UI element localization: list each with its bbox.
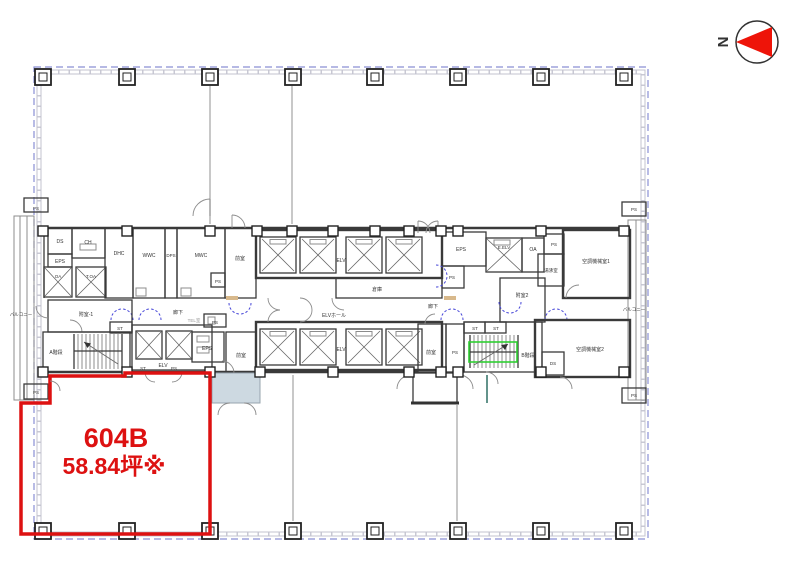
room-label-fushitsu2: 附室2 — [516, 292, 529, 299]
unit-area: 58.84坪※ — [63, 453, 166, 479]
room-label-ch: CH — [84, 240, 92, 246]
room-label-elv-upper: ELV — [336, 258, 346, 264]
room-label-elv-lower: ELV — [336, 347, 346, 353]
room-label-kucho2: 空調機械室2 — [576, 346, 604, 353]
balcony-right-label: バルコニー — [623, 307, 646, 312]
room-label-eps-left: EPS — [55, 259, 66, 265]
balcony-left-label: バルコニー — [10, 312, 33, 317]
room-label-mwc: MWC — [195, 253, 208, 259]
room-label-elv-lower-left: ELV — [158, 363, 168, 369]
room-label-ps-balcony-br: PS — [631, 393, 637, 398]
room-label-zenshitsu-lower-left: 前室 — [236, 352, 246, 359]
room-label-ps-balcony-bl: PS — [33, 390, 39, 395]
floorplan-drawing: PS PS PS PS バルコニー バルコニー DS CH EPS OA T.O… — [0, 0, 802, 562]
compass: N — [715, 21, 778, 63]
room-label-ps-b: PS — [452, 350, 458, 355]
room-label-t-oa: T.OA — [86, 274, 96, 279]
room-label-st-b1: ST — [472, 326, 478, 331]
room-label-a-stair: A階段 — [49, 349, 62, 356]
room-label-zenshitsu-upper: 前室 — [235, 255, 245, 262]
room-label-ps-bottom: PS — [171, 366, 177, 371]
room-label-oa-right: OA — [529, 247, 537, 253]
room-label-dhc: DHC — [114, 251, 125, 257]
room-label-ps-right1: PS — [449, 275, 455, 280]
room-label-yuwakashi: 湯沸室 — [544, 267, 558, 274]
room-label-elv-hall: ELVホール — [322, 313, 346, 319]
room-label-dps: DPS — [166, 253, 175, 258]
compass-north-label: N — [715, 37, 732, 48]
room-label-ps-right2: PS — [551, 242, 557, 247]
room-label-kucho1: 空調機械室1 — [582, 258, 610, 265]
room-label-oa-left: OA — [55, 274, 62, 279]
room-label-ps-balcony-tr: PS — [631, 207, 637, 212]
room-label-st-a-top: ST — [117, 326, 123, 331]
room-label-rouka-right: 廊下 — [428, 303, 438, 310]
room-label-ds: DS — [57, 239, 65, 245]
room-label-souko: 倉庫 — [372, 286, 382, 293]
elevator-bank-upper — [256, 230, 442, 310]
core-upper-right — [418, 221, 630, 322]
room-label-ps-mwc: PS — [215, 279, 221, 284]
upper-area-partitions — [193, 86, 292, 224]
room-label-wwc: WWC — [142, 253, 155, 259]
lower-area-partitions — [293, 375, 457, 521]
unit-name: 604B — [84, 423, 149, 453]
room-label-zenshitsu-lower-right: 前室 — [426, 349, 436, 356]
room-label-e-elv: E.ELV — [498, 245, 510, 250]
room-label-tel: TEL室 — [188, 317, 201, 323]
room-label-fushitsu1: 附室-1 — [79, 311, 94, 318]
room-label-b-stair: B階段 — [521, 352, 534, 359]
room-label-ps-tel: PS — [212, 320, 218, 325]
floorplan: PS PS PS PS バルコニー バルコニー DS CH EPS OA T.O… — [0, 0, 802, 562]
room-label-eps-lower: EPS — [202, 346, 213, 352]
room-label-eps-right: EPS — [456, 247, 467, 253]
elevator-bank-lower — [256, 310, 442, 370]
room-label-rouka-left: 廊下 — [173, 309, 183, 316]
room-label-ds-right: DS — [550, 361, 556, 366]
room-label-st-bottom: ST — [140, 366, 146, 371]
room-label-st-b2: ST — [493, 326, 499, 331]
vestibule-shaded — [212, 361, 260, 415]
room-label-ps-balcony-tl: PS — [33, 206, 39, 211]
